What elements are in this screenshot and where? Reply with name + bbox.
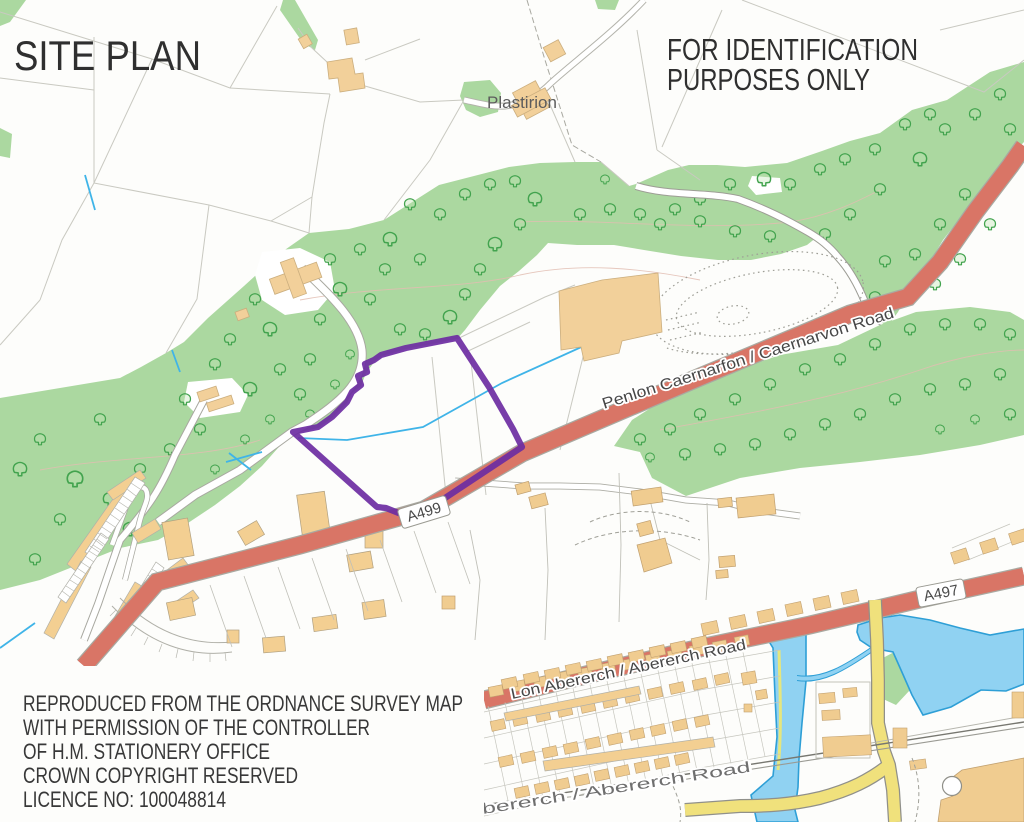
svg-text:CROWN COPYRIGHT RESERVED: CROWN COPYRIGHT RESERVED xyxy=(23,763,298,788)
svg-text:SITE PLAN: SITE PLAN xyxy=(14,32,201,79)
svg-text:OF H.M. STATIONERY OFFICE: OF H.M. STATIONERY OFFICE xyxy=(23,739,270,764)
svg-text:Plastirion: Plastirion xyxy=(487,93,557,112)
svg-text:PURPOSES ONLY: PURPOSES ONLY xyxy=(667,62,870,97)
svg-text:WITH PERMISSION OF THE CONTROL: WITH PERMISSION OF THE CONTROLLER xyxy=(23,715,370,740)
svg-text:LICENCE NO: 100048814: LICENCE NO: 100048814 xyxy=(23,787,226,812)
svg-text:REPRODUCED FROM THE ORDNANCE S: REPRODUCED FROM THE ORDNANCE SURVEY MAP xyxy=(23,691,463,716)
